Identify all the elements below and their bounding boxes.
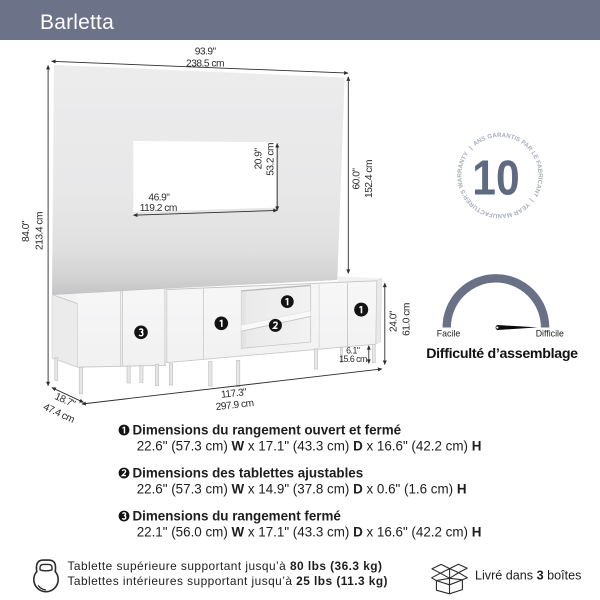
svg-text:119.2 cm: 119.2 cm xyxy=(140,203,177,214)
svg-text:Tablettes intérieures supporta: Tablettes intérieures supportant jusqu’à… xyxy=(68,574,388,588)
svg-text:20.9": 20.9" xyxy=(254,148,265,170)
svg-text:152.4 cm: 152.4 cm xyxy=(364,160,375,198)
svg-text:93.9": 93.9" xyxy=(195,47,217,58)
svg-text:15.6 cm: 15.6 cm xyxy=(339,354,367,364)
svg-text:84.0": 84.0" xyxy=(21,220,32,242)
svg-text:46.9": 46.9" xyxy=(148,193,170,204)
svg-text:Livré dans 3 boîtes: Livré dans 3 boîtes xyxy=(475,569,581,583)
svg-text:22.1" (56.0 cm) W x 17.1" (43.: 22.1" (56.0 cm) W x 17.1" (43.3 cm) D x … xyxy=(137,525,482,540)
svg-text:60.0": 60.0" xyxy=(352,168,363,190)
svg-text:24.0": 24.0" xyxy=(388,310,399,332)
svg-text:238.5 cm: 238.5 cm xyxy=(186,59,224,70)
svg-text:Tablette supérieure supportant: Tablette supérieure supportant jusqu’à 8… xyxy=(68,559,383,573)
svg-text:213.4 cm: 213.4 cm xyxy=(35,212,46,250)
svg-text:Facile: Facile xyxy=(437,329,461,339)
svg-text:Dimensions du rangement ouvert: Dimensions du rangement ouvert et fermé xyxy=(133,422,402,437)
svg-text:10: 10 xyxy=(472,149,519,205)
svg-text:61.0 cm: 61.0 cm xyxy=(401,303,412,336)
svg-text:53.2 cm: 53.2 cm xyxy=(265,143,276,176)
svg-text:Difficile: Difficile xyxy=(536,329,564,339)
svg-text:22.6" (57.3 cm) W x 14.9" (37.: 22.6" (57.3 cm) W x 14.9" (37.8 cm) D x … xyxy=(137,482,467,497)
svg-text:Dimensions du rangement fermé: Dimensions du rangement fermé xyxy=(133,508,341,523)
svg-text:Dimensions des tablettes ajust: Dimensions des tablettes ajustables xyxy=(133,465,364,480)
svg-text:22.6" (57.3 cm) W x 17.1" (43.: 22.6" (57.3 cm) W x 17.1" (43.3 cm) D x … xyxy=(137,439,482,454)
svg-text:Difficulté d’assemblage: Difficulté d’assemblage xyxy=(426,346,578,362)
